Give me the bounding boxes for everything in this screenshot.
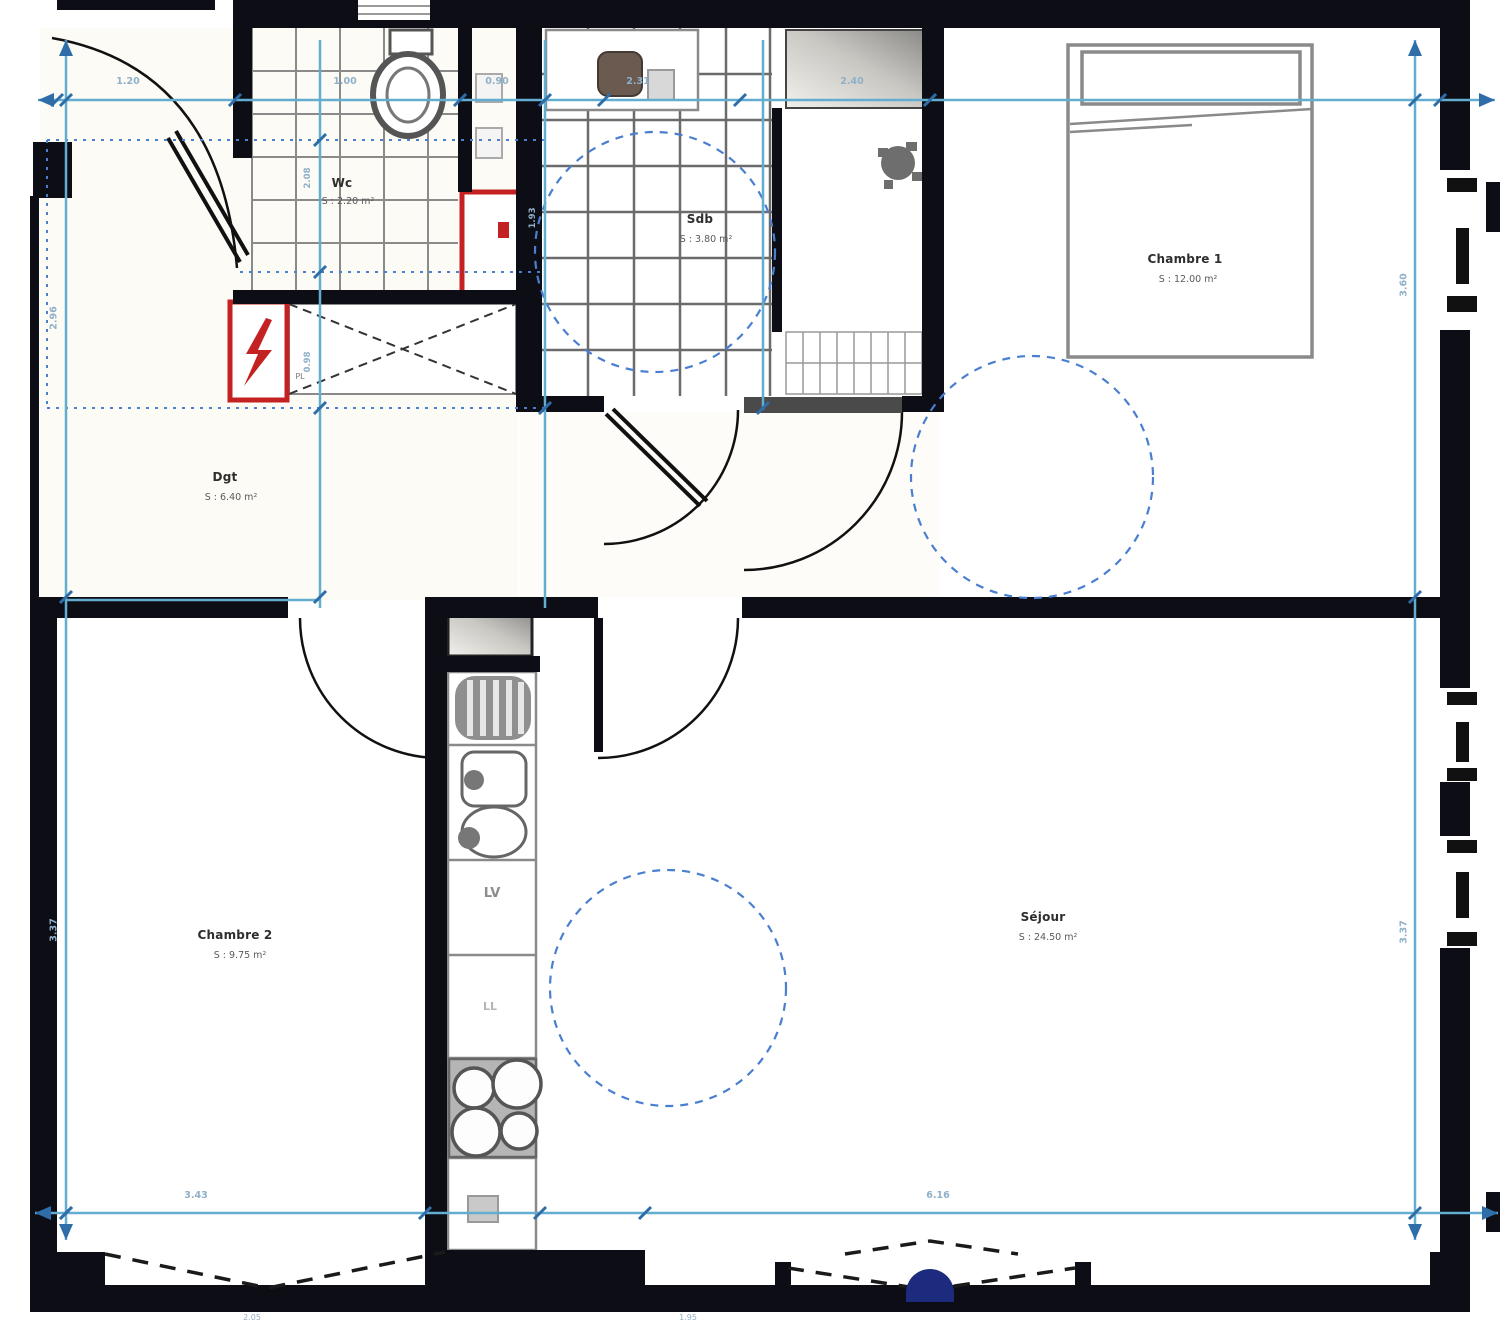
room-label-wc: Wc (332, 176, 353, 190)
room-area-sejour: S : 24.50 m² (1019, 932, 1078, 943)
dim-cut-2: 1.95 (679, 1313, 697, 1321)
room-area-chambre2: S : 9.75 m² (214, 950, 267, 961)
cooktop-icon (449, 1059, 541, 1157)
door-leaf-sejour (594, 618, 603, 752)
dim-inner-1: 2.08 (303, 168, 313, 189)
dim-bottom-2: 6.16 (926, 1190, 949, 1201)
dim-top-1: 1.20 (116, 76, 139, 87)
turning-circles (535, 132, 1153, 1106)
dim-top-2: 1.00 (333, 76, 356, 87)
room-area-chambre1: S : 12.00 m² (1159, 274, 1218, 285)
dim-left-upper: 2.96 (49, 306, 60, 329)
electrical-panel-icon (230, 302, 287, 400)
floor-plan: Wc S : 2.20 m² Sdb S : 3.80 m² Dgt S : 6… (0, 0, 1500, 1321)
dim-right-upper: 3.60 (1399, 273, 1410, 296)
room-area-dgt: S : 6.40 m² (205, 492, 258, 503)
shower-head-icon (878, 142, 923, 189)
dim-right-lower: 3.37 (1399, 920, 1410, 943)
room-label-chambre1: Chambre 1 (1148, 252, 1223, 266)
kitchen-strip (448, 672, 541, 1250)
dishwasher-label: LV (484, 886, 501, 901)
radiator-icon (462, 192, 520, 294)
dim-inner-3: 1.93 (528, 208, 538, 229)
fridge-icon (455, 676, 531, 740)
top-wall-window (358, 0, 430, 20)
dim-inner-2: 0.98 (303, 352, 313, 373)
room-label-dgt: Dgt (213, 470, 238, 484)
floor-plan-drawing (0, 0, 1500, 1321)
washer-label: LL (483, 1000, 497, 1013)
dim-bottom-1: 3.43 (184, 1190, 207, 1201)
closet-label: PL (295, 372, 304, 381)
room-label-chambre2: Chambre 2 (198, 928, 273, 942)
dim-left-lower: 3.37 (49, 918, 60, 941)
dim-top-3: 0.90 (485, 76, 508, 87)
dim-cut-1: 2.05 (243, 1313, 261, 1321)
dim-top-4: 2.31 (626, 76, 649, 87)
sink-icon (458, 752, 526, 857)
dim-top-5: 2.40 (840, 76, 863, 87)
room-area-sdb: S : 3.80 m² (680, 234, 733, 245)
counter-drain (468, 1196, 498, 1222)
room-label-sejour: Séjour (1021, 910, 1066, 924)
closet-cross (289, 304, 516, 394)
room-area-wc: S : 2.20 m² (322, 196, 375, 207)
bay-dome (906, 1269, 954, 1302)
bed (1068, 45, 1312, 357)
shower-radiator-grid (786, 332, 922, 394)
washbasin-icon (546, 30, 698, 110)
room-label-sdb: Sdb (687, 212, 713, 226)
